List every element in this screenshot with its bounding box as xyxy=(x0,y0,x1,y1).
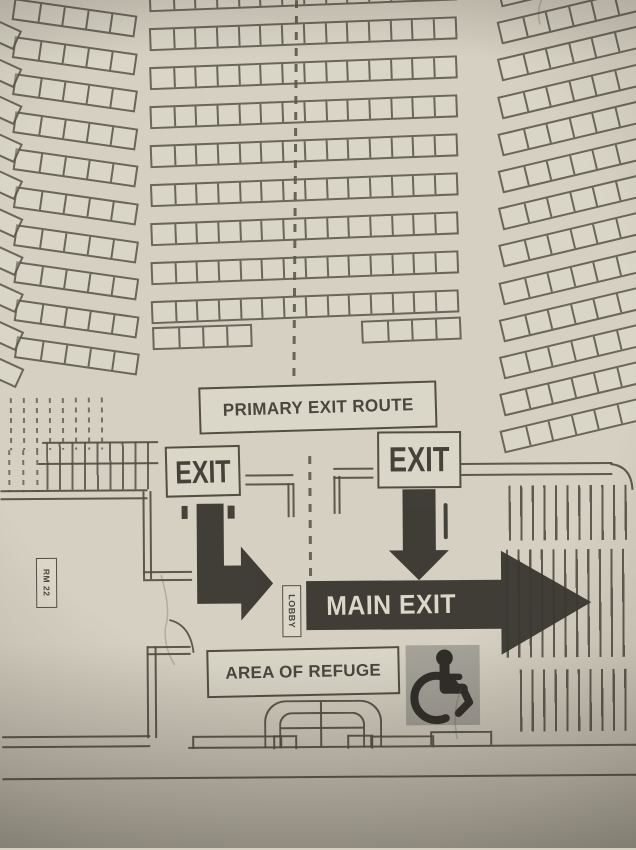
primary-exit-route-box: PRIMARY EXIT ROUTE xyxy=(198,380,437,434)
paper-crease-center xyxy=(455,689,461,739)
exit-sign-right: EXIT xyxy=(377,431,461,489)
area-of-refuge-box: AREA OF REFUGE xyxy=(206,646,400,698)
primary-exit-route-label: PRIMARY EXIT ROUTE xyxy=(222,394,413,421)
door-swing-arc xyxy=(169,620,193,653)
exit-sign-right-label: EXIT xyxy=(389,442,450,477)
down-exit-arrow xyxy=(388,489,449,580)
evacuation-map: PRIMARY EXIT ROUTE EXIT EXIT MAIN EXIT A… xyxy=(0,0,636,850)
lobby-box: LOBBY xyxy=(282,585,301,637)
room-22-box: RM 22 xyxy=(36,558,57,608)
main-exit-label: MAIN EXIT xyxy=(326,589,456,622)
paper-crease-top xyxy=(538,0,542,24)
lobby-label: LOBBY xyxy=(287,594,297,628)
wall-corner-curve xyxy=(610,464,632,490)
bent-exit-arrow xyxy=(197,503,274,621)
room-22-label: RM 22 xyxy=(42,569,52,597)
exit-sign-left: EXIT xyxy=(165,445,241,498)
exit-sign-left-label: EXIT xyxy=(175,455,231,488)
area-of-refuge-label: AREA OF REFUGE xyxy=(225,660,381,683)
